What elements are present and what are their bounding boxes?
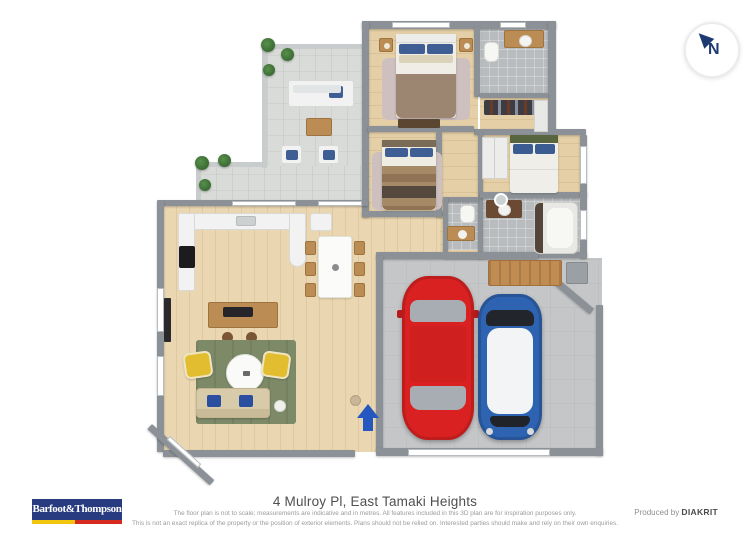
- bedroom3-bed: [510, 135, 558, 193]
- bedroom2-pillow: [385, 148, 408, 157]
- deck-slider-door: [232, 201, 296, 206]
- red-car: [402, 276, 474, 440]
- red-car-windshield: [410, 300, 466, 322]
- outdoor-armchair-cushion: [323, 150, 335, 160]
- bedroom3-duvet-fold: [510, 169, 558, 170]
- wall-powder-top: [443, 197, 478, 202]
- outdoor-armchair-cushion: [286, 150, 298, 160]
- powder-toilet: [460, 205, 475, 223]
- potted-plant: [199, 179, 211, 191]
- wall-master-left: [362, 21, 369, 217]
- living-window-left: [157, 288, 164, 332]
- garage-door: [408, 449, 550, 456]
- blue-car-windshield: [486, 310, 534, 326]
- produced-by-label: Produced by: [634, 508, 681, 517]
- outdoor-sofa: [288, 80, 354, 107]
- red-car-roof: [410, 326, 466, 382]
- kitchen-island: [208, 302, 278, 328]
- bathtub-basin: [547, 208, 573, 248]
- family-coffee-table: [226, 354, 264, 392]
- potted-plant: [218, 154, 231, 167]
- bedroom2-bed: [382, 140, 436, 210]
- red-car-rear-window: [410, 386, 466, 410]
- produced-by: Produced by DIAKRIT: [598, 507, 718, 517]
- bedroom3-window: [580, 146, 587, 184]
- deck-railing-top: [262, 44, 368, 49]
- tv-unit: [164, 298, 171, 342]
- deck-slider-door: [318, 201, 362, 206]
- bedroom2-pillow: [410, 148, 433, 157]
- master-window: [392, 22, 450, 28]
- entry-arrow-stem: [363, 417, 373, 431]
- wardrobe-door-line: [494, 138, 495, 178]
- ensuite-vanity: [504, 30, 544, 48]
- outdoor-sofa-cushion: [293, 85, 341, 93]
- bedroom3-pillow: [535, 144, 555, 154]
- compass: N: [684, 22, 740, 78]
- outdoor-armchair: [281, 145, 302, 164]
- wall-garage-right: [596, 305, 603, 455]
- bedroom3-headboard: [510, 135, 558, 143]
- kitchen-counter-right: [289, 213, 306, 267]
- disclaimer-line2: This is not an exact replica of the prop…: [0, 519, 750, 529]
- garage-workbench: [488, 260, 562, 286]
- kitchen-oven: [179, 246, 195, 268]
- blue-car-white-roof: [487, 328, 533, 414]
- bedroom2-runner: [382, 186, 436, 198]
- dining-chair: [354, 283, 365, 297]
- garage-shelf: [566, 262, 588, 284]
- wall-ensuite-right: [548, 21, 556, 136]
- outdoor-coffee-table: [306, 118, 332, 136]
- family-sofa: [196, 388, 270, 418]
- producer-name: DIAKRIT: [681, 507, 718, 517]
- bathroom-mirror: [494, 193, 508, 207]
- refrigerator: [310, 213, 332, 231]
- bedroom3-wardrobe: [482, 137, 508, 179]
- master-nightstand: [459, 38, 473, 52]
- bedroom2-headboard: [382, 140, 436, 147]
- living-window-left: [157, 356, 164, 396]
- powder-basin: [458, 230, 467, 239]
- master-bed-cushions: [399, 55, 453, 63]
- wall-ensuite-closet: [480, 93, 548, 98]
- master-bed-pillow: [399, 44, 425, 54]
- bedroom3-pillow: [513, 144, 533, 154]
- bathtub: [534, 202, 578, 254]
- island-cooktop: [223, 307, 253, 317]
- potted-plant: [281, 48, 294, 61]
- potted-plant: [263, 64, 275, 76]
- floorplan-image: N Barfoot&Thompson 4 Mulroy Pl, East Tam…: [0, 0, 750, 547]
- potted-plant: [261, 38, 275, 52]
- entry-arrow-head: [357, 404, 379, 418]
- ensuite-toilet: [484, 42, 499, 62]
- wall-garage-left: [376, 256, 383, 452]
- compass-letter: N: [708, 41, 730, 63]
- dining-chair: [305, 241, 316, 255]
- master-bed-headboard: [396, 34, 456, 43]
- table-lamp: [384, 43, 390, 49]
- deck-railing-left-upper: [262, 44, 267, 168]
- side-table: [274, 400, 286, 412]
- potted-plant: [195, 156, 209, 170]
- dining-chair: [305, 283, 316, 297]
- dining-chair: [354, 241, 365, 255]
- sofa-pillow: [239, 395, 253, 407]
- wall-garage-top: [376, 252, 538, 259]
- table-decor: [243, 371, 250, 376]
- dining-chair: [354, 262, 365, 276]
- yellow-armchair: [182, 350, 213, 380]
- master-nightstand: [379, 38, 393, 52]
- master-dresser: [398, 119, 440, 128]
- dining-centerpiece: [332, 264, 339, 271]
- ensuite-basin: [519, 35, 532, 47]
- blue-car-rear-window: [490, 416, 530, 427]
- sofa-pillow: [207, 395, 221, 407]
- ensuite-window: [500, 22, 526, 28]
- sofa-back: [197, 409, 269, 417]
- dining-chair: [305, 262, 316, 276]
- blue-car-light: [486, 428, 493, 435]
- master-bed-blanket: [396, 74, 456, 118]
- red-car-mirror: [397, 310, 403, 318]
- master-bed: [396, 34, 456, 118]
- blue-car: [478, 294, 542, 440]
- walkin-closet-shelves: [534, 100, 548, 132]
- bathroom-window: [580, 210, 587, 240]
- bathtub-panel: [535, 203, 543, 253]
- table-lamp: [464, 43, 470, 49]
- master-bed-pillow: [427, 44, 453, 54]
- wall-bedroom2-bottom: [362, 211, 443, 217]
- kitchen-sink: [236, 216, 256, 226]
- blue-car-light: [527, 428, 534, 435]
- outdoor-armchair: [318, 145, 339, 164]
- powder-vanity: [447, 226, 475, 241]
- dining-table: [318, 236, 352, 298]
- wall-master-ensuite: [474, 27, 480, 97]
- yellow-armchair: [260, 350, 291, 380]
- wall-powder-left: [443, 197, 448, 252]
